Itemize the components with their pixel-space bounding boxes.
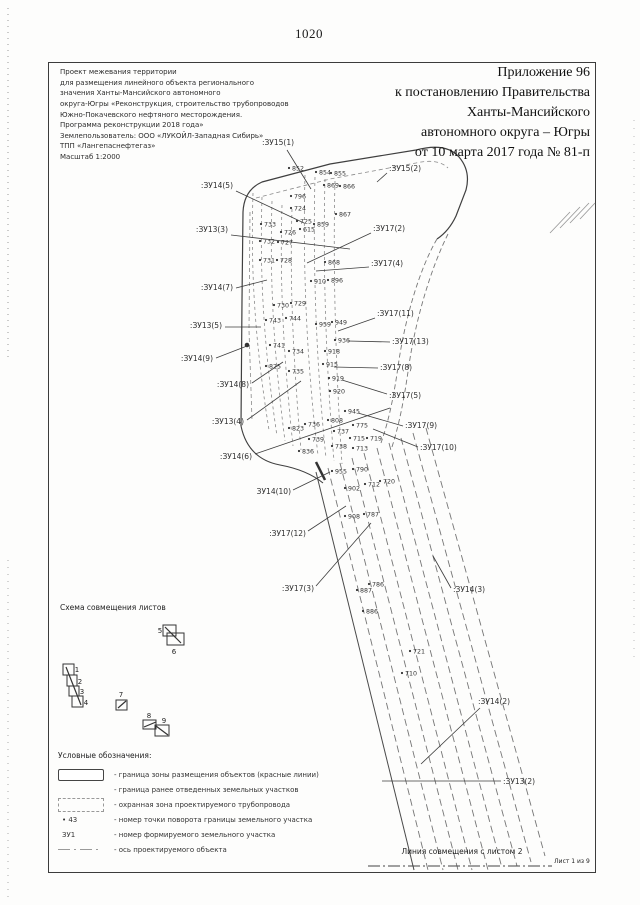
sheet-counter: Лист 1 из 9 (550, 858, 594, 865)
legend-item: - граница зоны размещения объектов (крас… (58, 767, 398, 782)
legend-item: • 43 - номер точки поворота границы земе… (58, 812, 398, 827)
legend-item-text: - охранная зона проектируемого трубопров… (110, 801, 290, 809)
title-line: Ханты-Мансийского (270, 103, 590, 123)
turn-point-symbol: • 43 (58, 816, 110, 824)
legend-title: Условные обозначения: (58, 751, 398, 760)
title-line: от 10 марта 2017 года № 81-п (270, 143, 590, 163)
match-line-label: Линия совмещения с листом 2 (372, 847, 552, 856)
legend-item: - охранная зона проектируемого трубопров… (58, 797, 398, 812)
parcel-number-symbol: ЗУ1 (58, 831, 110, 839)
title-line: к постановлению Правительства (270, 83, 590, 103)
red-lines-boundary-symbol (58, 769, 110, 781)
legend-item: - граница ранее отведенных земельных уча… (58, 782, 398, 797)
title-line: Приложение 96 (270, 63, 590, 83)
page-number: 1020 (0, 26, 618, 42)
legend-item-text: - граница ранее отведенных земельных уча… (110, 786, 299, 794)
legend-item: - ось проектируемого объекта (58, 842, 398, 857)
sheet-scheme-title: Схема совмещения листов (60, 603, 166, 612)
legend-item-text: - ось проектируемого объекта (110, 846, 227, 854)
legend-item-text: - граница зоны размещения объектов (крас… (110, 771, 319, 779)
legend-item: ЗУ1 - номер формируемого земельного учас… (58, 827, 398, 842)
legend-item-text: - номер формируемого земельного участка (110, 831, 275, 839)
decree-title: Приложение 96 к постановлению Правительс… (270, 63, 590, 162)
title-line: автономного округа – Югры (270, 123, 590, 143)
document-page: 1020 85285485586986679672473372572661585… (0, 0, 640, 905)
object-axis-symbol (58, 849, 110, 850)
pipeline-protection-zone-symbol (58, 798, 110, 812)
allotted-parcels-boundary-symbol (58, 785, 110, 795)
legend-item-text: - номер точки поворота границы земельног… (110, 816, 312, 824)
legend: Условные обозначения: - граница зоны раз… (58, 751, 398, 857)
